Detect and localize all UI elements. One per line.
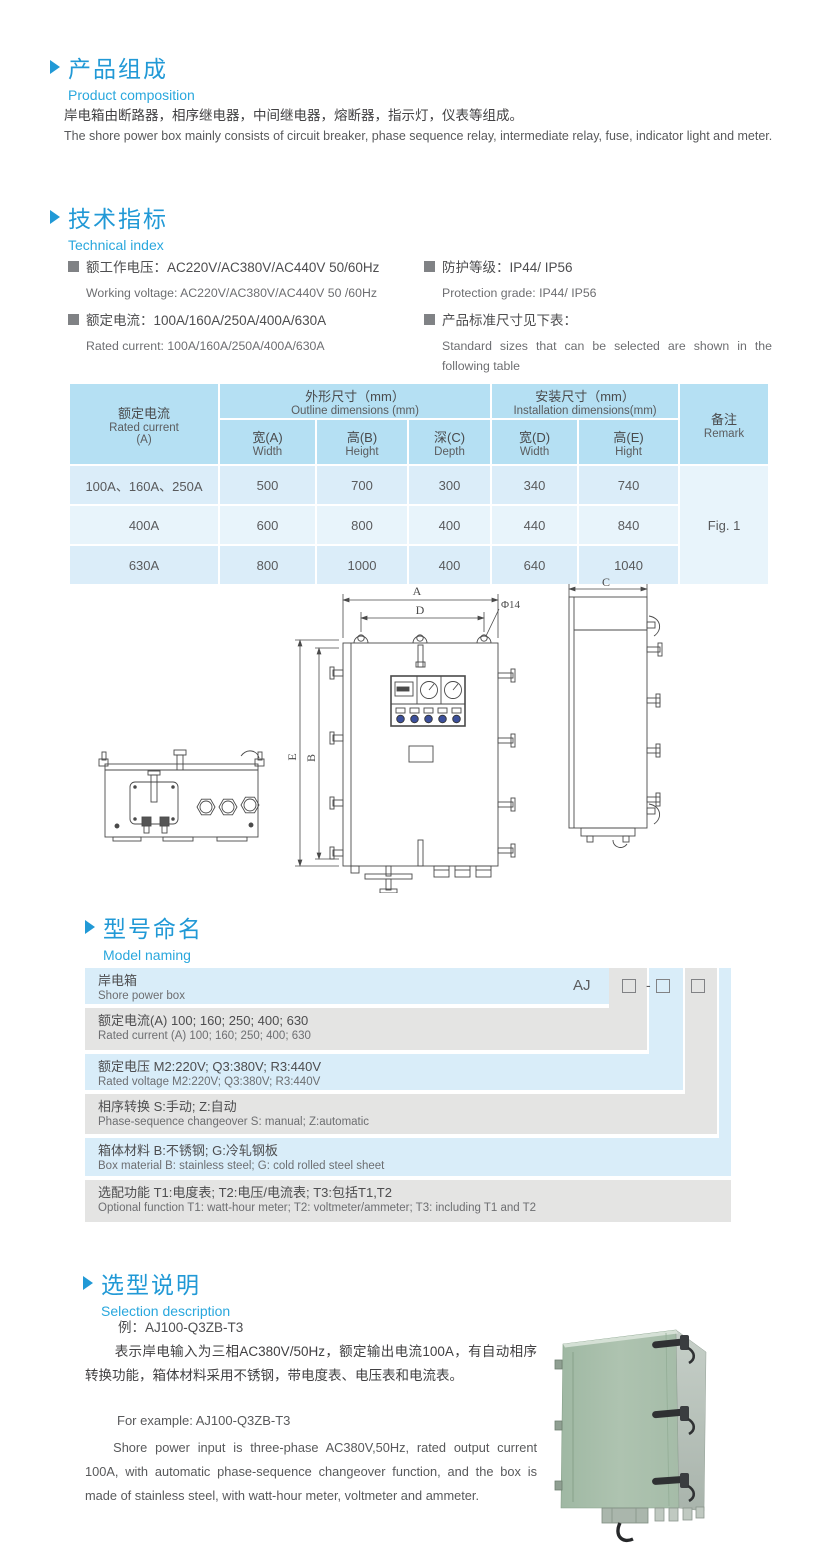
naming-row-phase-sequence: 相序转换 S:手动; Z:自动 Phase-sequence changeove… xyxy=(85,1094,717,1134)
header-rated-current: 额定电流 Rated current (A) xyxy=(69,383,219,465)
dim-label-b: B xyxy=(304,754,318,762)
cell-width: 600 xyxy=(219,505,316,545)
model-naming-diagram: 岸电箱 Shore power box 额定电流(A) 100; 160; 25… xyxy=(85,968,731,1222)
section-product-composition-header: 产品组成 Product composition xyxy=(50,50,195,103)
header-cn: 外形尺寸（mm） xyxy=(220,386,490,405)
dimension-lines xyxy=(295,584,647,866)
spec-protection-grade: 防护等级：IP44/ IP56 Protection grade: IP44/ … xyxy=(424,256,774,303)
cable-glands xyxy=(602,1507,704,1540)
spec-working-voltage: 额工作电压：AC220V/AC380V/AC440V 50/60Hz Worki… xyxy=(68,256,418,303)
product-photo xyxy=(538,1300,808,1568)
spec-en: Rated current: 100A/160A/250A/400A/630A xyxy=(86,336,418,356)
section-model-naming-header: 型号命名 Model naming xyxy=(85,910,203,963)
table-row: 100A、160A、250A 500 700 300 340 740 Fig. … xyxy=(69,465,769,505)
section-title-en: Product composition xyxy=(68,87,195,103)
header-en: Outline dimensions (mm) xyxy=(220,405,490,417)
square-bullet-icon xyxy=(68,261,79,272)
header-cn: 备注 xyxy=(680,409,768,428)
section-title-cn: 产品组成 xyxy=(68,50,168,84)
model-code-box-current xyxy=(622,979,636,993)
naming-row-rated-current: 额定电流(A) 100; 160; 250; 400; 630 Rated cu… xyxy=(85,1008,647,1050)
section-arrow-icon xyxy=(85,920,95,934)
selection-body-en: Shore power input is three-phase AC380V,… xyxy=(85,1436,537,1508)
cell-depth: 400 xyxy=(408,505,491,545)
dim-label-a: A xyxy=(413,584,422,598)
technical-drawing: A D Φ14 E B C xyxy=(65,578,765,893)
subheader-width-a: 宽(A)Width xyxy=(219,419,316,465)
subheader-hight-e: 高(E)Hight xyxy=(578,419,679,465)
door-hinges xyxy=(555,1360,562,1490)
cell-install-width: 340 xyxy=(491,465,578,505)
naming-row-shore-power-box: 岸电箱 Shore power box xyxy=(85,968,609,1004)
dim-label-c: C xyxy=(602,578,610,589)
dimensions-table: 额定电流 Rated current (A) 外形尺寸（mm） Outline … xyxy=(68,382,770,586)
header-unit: (A) xyxy=(70,434,218,446)
spec-en: Protection grade: IP44/ IP56 xyxy=(442,283,774,303)
cell-remark: Fig. 1 xyxy=(679,465,769,585)
cell-install-width: 440 xyxy=(491,505,578,545)
cell-depth: 300 xyxy=(408,465,491,505)
square-bullet-icon xyxy=(424,314,435,325)
section-title-cn: 选型说明 xyxy=(101,1266,201,1300)
header-outline-dimensions: 外形尺寸（mm） Outline dimensions (mm) xyxy=(219,383,491,419)
section-arrow-icon xyxy=(50,60,60,74)
spec-cn: 防护等级：IP44/ IP56 xyxy=(442,256,573,276)
subheader-height-b: 高(B)Height xyxy=(316,419,408,465)
table-row: 400A 600 800 400 440 840 xyxy=(69,505,769,545)
composition-body-cn: 岸电箱由断路器，相序继电器，中间继电器，熔断器，指示灯，仪表等组成。 xyxy=(64,104,523,124)
section-title-cn: 技术指标 xyxy=(68,200,168,234)
section-title-cn: 型号命名 xyxy=(103,910,203,944)
section-selection-description-header: 选型说明 Selection description xyxy=(83,1266,230,1319)
naming-row-rated-voltage: 额定电压 M2:220V; Q3:380V; R3:440V Rated vol… xyxy=(85,1054,681,1090)
naming-row-box-material: 箱体材料 B:不锈钢; G:冷轧钢板 Box material B: stain… xyxy=(85,1138,731,1176)
header-remark: 备注 Remark xyxy=(679,383,769,465)
section-arrow-icon xyxy=(83,1276,93,1290)
square-bullet-icon xyxy=(68,314,79,325)
model-code-dash: - xyxy=(646,977,651,993)
spec-rated-current: 额定电流：100A/160A/250A/400A/630A Rated curr… xyxy=(68,309,418,356)
spec-en: Standard sizes that can be selected are … xyxy=(442,336,772,376)
cell-current: 100A、160A、250A xyxy=(69,465,219,505)
section-title-en: Technical index xyxy=(68,237,168,253)
datasheet-page: 产品组成 Product composition 岸电箱由断路器，相序继电器，中… xyxy=(0,0,830,1568)
indicator-lights xyxy=(396,708,461,723)
cell-height: 800 xyxy=(316,505,408,545)
selection-example-cn: 例：AJ100-Q3ZB-T3 xyxy=(118,1316,243,1336)
spec-cn: 额定电流：100A/160A/250A/400A/630A xyxy=(86,309,326,329)
cell-width: 500 xyxy=(219,465,316,505)
model-code-prefix: AJ xyxy=(573,977,591,994)
header-en: Installation dimensions(mm) xyxy=(492,405,678,417)
header-cn: 安装尺寸（mm） xyxy=(492,386,678,405)
cell-install-hight: 740 xyxy=(578,465,679,505)
selection-example-en: For example: AJ100-Q3ZB-T3 xyxy=(117,1413,290,1428)
section-title-en: Model naming xyxy=(103,947,203,963)
header-en: Rated current xyxy=(70,422,218,434)
dim-label-d: D xyxy=(416,603,425,617)
section-technical-index-header: 技术指标 Technical index xyxy=(50,200,168,253)
section-arrow-icon xyxy=(50,210,60,224)
bottom-view xyxy=(99,750,264,841)
front-view xyxy=(330,635,515,893)
spec-cn: 额工作电压：AC220V/AC380V/AC440V 50/60Hz xyxy=(86,256,379,276)
model-code-box-option xyxy=(691,979,705,993)
spec-cn: 产品标准尺寸见下表： xyxy=(442,309,577,329)
cell-height: 700 xyxy=(316,465,408,505)
dim-label-phi14: Φ14 xyxy=(501,599,521,611)
subheader-depth-c: 深(C)Depth xyxy=(408,419,491,465)
cell-install-hight: 840 xyxy=(578,505,679,545)
model-code-box-voltage xyxy=(656,979,670,993)
square-bullet-icon xyxy=(424,261,435,272)
header-installation-dimensions: 安装尺寸（mm） Installation dimensions(mm) xyxy=(491,383,679,419)
spec-en: Working voltage: AC220V/AC380V/AC440V 50… xyxy=(86,283,418,303)
subheader-width-d: 宽(D)Width xyxy=(491,419,578,465)
spec-standard-sizes: 产品标准尺寸见下表： Standard sizes that can be se… xyxy=(424,309,772,376)
selection-body-cn: 表示岸电输入为三相AC380V/50Hz，额定输出电流100A，有自动相序转换功… xyxy=(85,1340,537,1388)
cell-current: 400A xyxy=(69,505,219,545)
side-view xyxy=(569,597,662,847)
naming-row-optional-function: 选配功能 T1:电度表; T2:电压/电流表; T3:包括T1,T2 Optio… xyxy=(85,1180,731,1222)
header-cn: 额定电流 xyxy=(70,403,218,422)
dim-label-e: E xyxy=(285,753,299,760)
composition-body-en: The shore power box mainly consists of c… xyxy=(64,129,784,143)
header-en: Remark xyxy=(680,428,768,440)
